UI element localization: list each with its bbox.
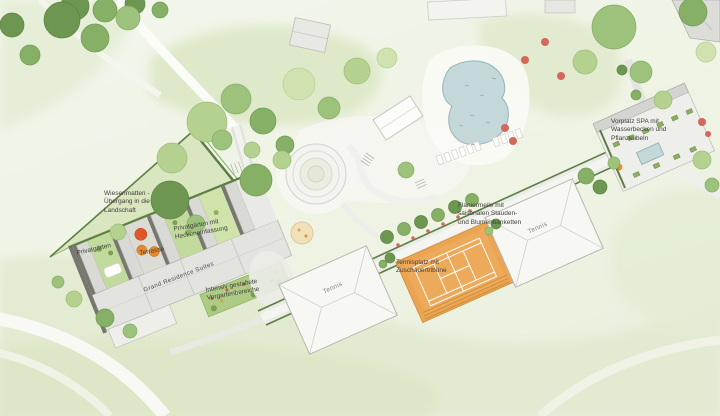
site-plan-drawing	[0, 0, 720, 416]
pond	[443, 61, 509, 145]
playground	[291, 222, 313, 244]
site-plan: Wiesenmatten - Übergang in die Landschaf…	[0, 0, 720, 416]
